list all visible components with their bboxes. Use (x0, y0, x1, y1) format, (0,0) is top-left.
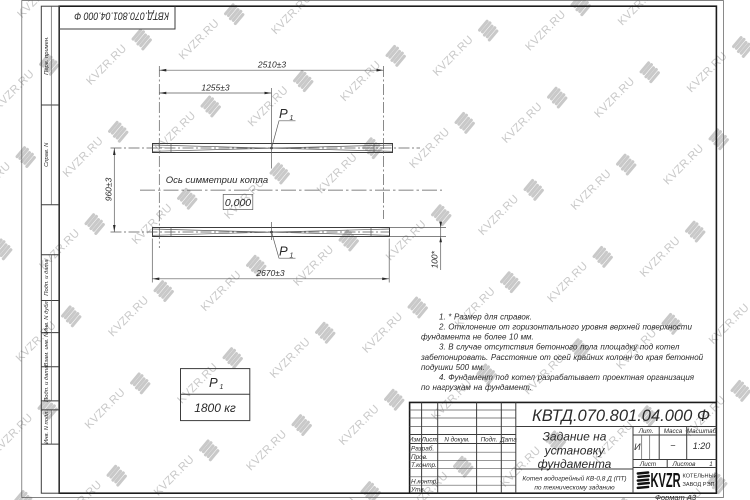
svg-text:Разраб.: Разраб. (411, 445, 434, 453)
svg-text:Листов: Листов (672, 461, 697, 468)
svg-text:KVZR.RU: KVZR.RU (638, 235, 683, 280)
svg-text:по нагрузкам на фундамент.: по нагрузкам на фундамент. (421, 383, 532, 392)
svg-text:960±3: 960±3 (103, 177, 113, 201)
svg-text:KVZR.RU: KVZR.RU (0, 68, 37, 113)
svg-text:Подп.: Подп. (481, 435, 498, 443)
svg-text:KVZR.RU: KVZR.RU (106, 294, 151, 339)
svg-text:1800 кг: 1800 кг (194, 401, 236, 415)
svg-text:Инв. N дубл.: Инв. N дубл. (44, 300, 50, 334)
svg-text:1: 1 (220, 384, 224, 391)
svg-text:Изм.: Изм. (409, 436, 422, 443)
svg-text:–: – (670, 441, 676, 450)
svg-text:KVZR.RU: KVZR.RU (291, 244, 336, 289)
svg-text:KVZR.RU: KVZR.RU (407, 126, 452, 171)
svg-text:P: P (209, 375, 218, 390)
svg-text:Взам. инв. N: Взам. инв. N (44, 332, 50, 367)
svg-text:KVZR.RU: KVZR.RU (84, 43, 129, 88)
svg-text:KVZR.RU: KVZR.RU (59, 479, 104, 500)
svg-text:KVZR.RU: KVZR.RU (569, 168, 614, 213)
svg-text:N докум.: N докум. (444, 435, 469, 443)
svg-text:Подп. и дата: Подп. и дата (44, 365, 50, 402)
svg-text:P: P (279, 244, 288, 259)
svg-text:КОТЕЛЬНЫЙ: КОТЕЛЬНЫЙ (683, 471, 718, 479)
svg-text:KVZR.RU: KVZR.RU (592, 75, 637, 120)
svg-text:Утв.: Утв. (410, 487, 426, 494)
svg-text:2510±3: 2510±3 (257, 60, 287, 70)
svg-text:Формат А3: Формат А3 (655, 493, 697, 500)
svg-text:Пров.: Пров. (411, 454, 428, 461)
svg-text:КВТД.070.801.04.000 Ф: КВТД.070.801.04.000 Ф (532, 407, 710, 425)
svg-text:забетонировать. Расстояние от: забетонировать. Расстояние от осей крайн… (420, 353, 704, 362)
svg-text:KVZR.RU: KVZR.RU (244, 428, 289, 473)
svg-text:KVZR.RU: KVZR.RU (545, 260, 590, 305)
svg-text:KVZR.RU: KVZR.RU (337, 403, 382, 448)
svg-text:1:20: 1:20 (693, 441, 711, 451)
svg-text:100*: 100* (430, 250, 440, 268)
svg-text:KVZR.RU: KVZR.RU (14, 319, 59, 364)
svg-text:Лист: Лист (639, 461, 656, 468)
svg-text:KVZR.RU: KVZR.RU (268, 336, 313, 381)
svg-text:KVZR.RU: KVZR.RU (476, 193, 521, 238)
svg-text:фундамента: фундамента (538, 457, 612, 471)
svg-text:KVZR.RU: KVZR.RU (498, 445, 543, 490)
svg-text:Инв. N подл.: Инв. N подл. (44, 410, 50, 444)
svg-text:Ось симметрии котла: Ось симметрии котла (166, 175, 268, 186)
svg-text:Масса: Масса (664, 428, 683, 435)
svg-text:Задание на: Задание на (543, 430, 607, 444)
svg-text:KVZR.RU: KVZR.RU (177, 17, 222, 62)
svg-text:Лист: Лист (420, 436, 437, 443)
svg-text:KVZR.RU: KVZR.RU (707, 302, 750, 347)
svg-text:Н.контр.: Н.контр. (411, 479, 438, 486)
svg-text:KVZR.RU: KVZR.RU (500, 101, 545, 146)
svg-text:2670±3: 2670±3 (255, 268, 285, 278)
svg-text:1. * Размер для справок.: 1. * Размер для справок. (439, 312, 532, 321)
svg-text:KVZR.RU: KVZR.RU (616, 0, 661, 28)
svg-text:ЗАВОД РЭП: ЗАВОД РЭП (683, 482, 715, 488)
svg-text:Масштаб: Масштаб (687, 427, 717, 435)
svg-text:фундамента не более 10 мм.: фундамента не более 10 мм. (421, 333, 534, 342)
svg-text:Справ. N: Справ. N (44, 142, 50, 167)
svg-text:подушки 500 мм.: подушки 500 мм. (421, 363, 485, 372)
svg-text:Дата: Дата (499, 436, 517, 443)
svg-text:KVZR.RU: KVZR.RU (661, 142, 706, 187)
svg-text:KVZR.RU: KVZR.RU (523, 8, 568, 53)
svg-text:Перв. примен.: Перв. примен. (44, 36, 50, 75)
svg-text:4. Фундамент под котел разраб: 4. Фундамент под котел разрабатывает про… (439, 373, 695, 382)
svg-text:2. Отклонение от горизонтальн: 2. Отклонение от горизонтального уровня … (438, 322, 692, 331)
svg-text:1255±3: 1255±3 (201, 82, 230, 92)
svg-text:установку: установку (544, 444, 606, 458)
svg-text:Подп. и дата: Подп. и дата (44, 259, 50, 296)
svg-text:KVZR.RU: KVZR.RU (83, 386, 128, 431)
svg-text:KVZR.RU: KVZR.RU (61, 135, 106, 180)
svg-text:Т.контр.: Т.контр. (411, 462, 437, 469)
svg-text:KVZR.RU: KVZR.RU (431, 34, 476, 79)
svg-text:1: 1 (709, 461, 713, 468)
svg-text:KVZR.RU: KVZR.RU (338, 59, 383, 104)
svg-text:KVZR.RU: KVZR.RU (0, 160, 13, 205)
svg-text:P: P (279, 106, 288, 121)
svg-text:KVZR.RU: KVZR.RU (315, 151, 360, 196)
svg-text:0,000: 0,000 (225, 197, 251, 209)
svg-text:Лит.: Лит. (638, 428, 654, 435)
svg-text:KVZR.RU: KVZR.RU (199, 269, 244, 314)
svg-text:KVZR: KVZR (651, 470, 681, 492)
svg-text:по техническому заданию: по техническому заданию (534, 483, 614, 491)
svg-text:И: И (634, 442, 641, 452)
svg-text:KVZR.RU: KVZR.RU (360, 311, 405, 356)
svg-text:KVZR.RU: KVZR.RU (384, 218, 429, 263)
svg-text:3. В случае отсутствия бетонн: 3. В случае отсутствия бетонного пола пл… (439, 343, 680, 352)
svg-text:Котел водогрейный КВ-0,8 Д (П: Котел водогрейный КВ-0,8 Д (ПТ) (522, 475, 626, 483)
svg-text:KVZR.RU: KVZR.RU (0, 412, 35, 457)
svg-text:КВТД.070.801.04.000 Ф: КВТД.070.801.04.000 Ф (74, 9, 169, 21)
svg-text:KVZR.RU: KVZR.RU (152, 453, 197, 498)
